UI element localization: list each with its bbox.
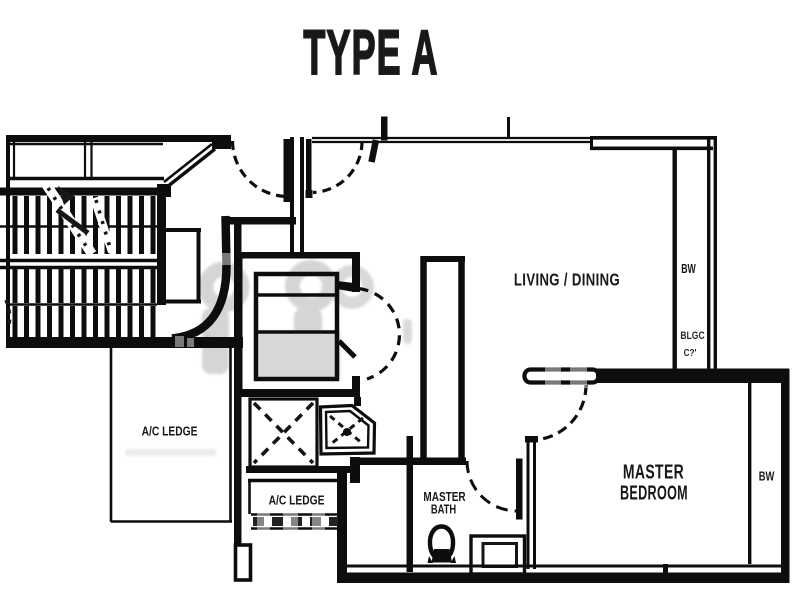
svg-text:MASTER: MASTER [423, 491, 465, 504]
svg-text:LIVING / DINING: LIVING / DINING [514, 271, 620, 290]
svg-text:BW: BW [759, 470, 775, 484]
svg-text:A/C LEDGE: A/C LEDGE [269, 493, 325, 507]
svg-text:A/C LEDGE: A/C LEDGE [142, 424, 198, 438]
svg-text:MASTER: MASTER [623, 460, 684, 483]
svg-text:BW: BW [681, 263, 696, 277]
svg-text:BLGC: BLGC [680, 330, 704, 342]
svg-text:TYPE A: TYPE A [303, 17, 438, 87]
svg-text:C?': C?' [684, 346, 697, 358]
svg-text:BATH: BATH [431, 503, 456, 517]
svg-text:BEDROOM: BEDROOM [620, 482, 688, 505]
